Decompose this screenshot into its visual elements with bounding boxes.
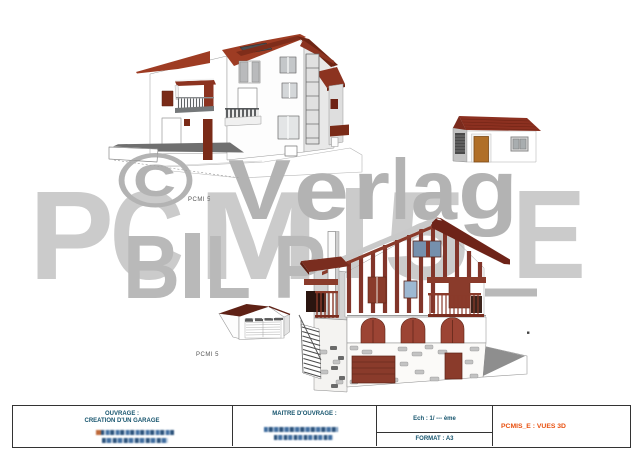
svg-text:l: l <box>391 143 410 238</box>
svg-text:r: r <box>353 143 390 238</box>
svg-text:e: e <box>294 143 349 238</box>
svg-text:©: © <box>117 138 194 224</box>
svg-text:E: E <box>512 164 586 305</box>
svg-text:B: B <box>123 218 180 318</box>
svg-text:P: P <box>29 165 114 306</box>
svg-text:g: g <box>458 143 518 238</box>
svg-text:V: V <box>228 143 291 238</box>
svg-text:a: a <box>411 143 458 238</box>
